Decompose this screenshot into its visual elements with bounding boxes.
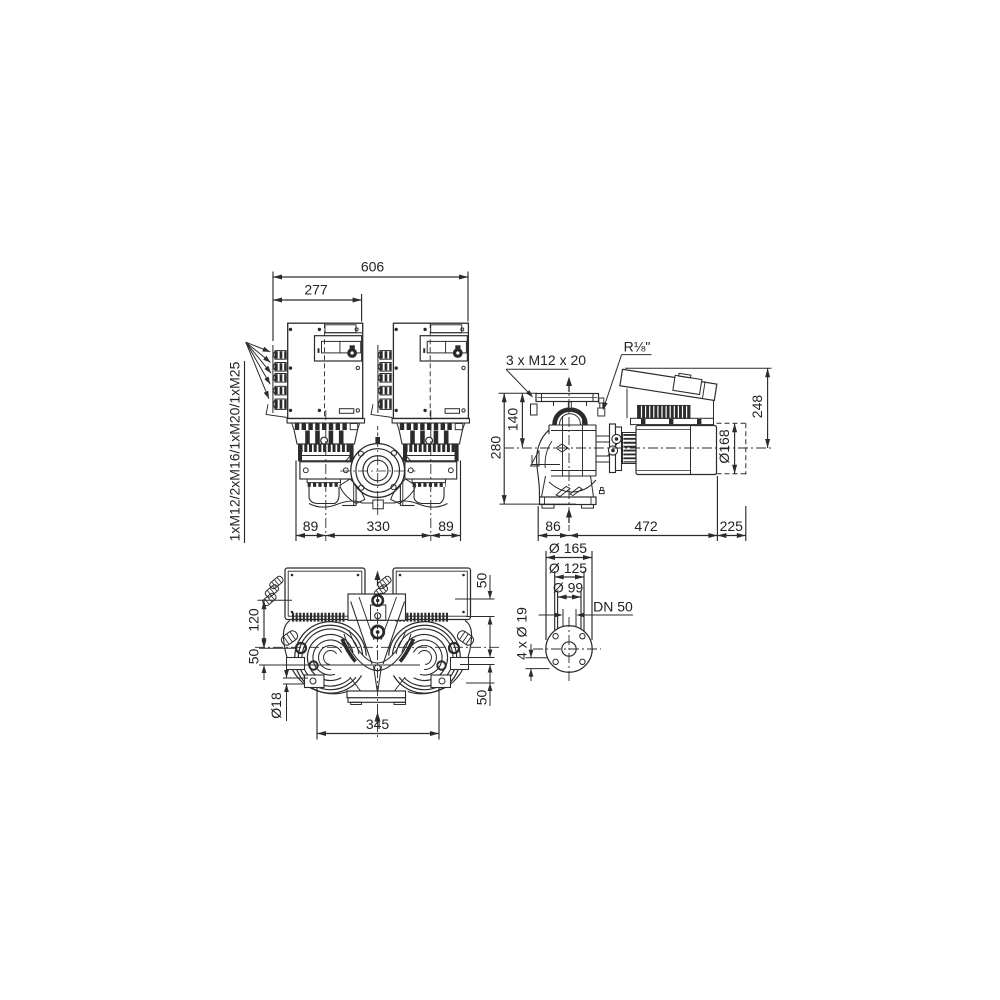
svg-text:225: 225 <box>720 518 744 534</box>
svg-text:248: 248 <box>749 395 765 419</box>
svg-text:89: 89 <box>438 518 454 534</box>
svg-text:345: 345 <box>366 716 390 732</box>
svg-text:280: 280 <box>488 436 504 460</box>
svg-text:277: 277 <box>304 282 328 298</box>
svg-text:330: 330 <box>367 518 391 534</box>
svg-text:DN 50: DN 50 <box>593 599 633 615</box>
svg-text:R⅛": R⅛" <box>624 339 651 355</box>
svg-text:140: 140 <box>505 408 521 432</box>
svg-text:89: 89 <box>303 518 319 534</box>
svg-text:86: 86 <box>545 518 561 534</box>
svg-text:Ø18: Ø18 <box>268 692 284 719</box>
svg-text:472: 472 <box>634 518 658 534</box>
svg-text:Ø 165: Ø 165 <box>549 540 587 556</box>
svg-text:50: 50 <box>474 690 490 706</box>
svg-text:Ø168: Ø168 <box>716 429 732 463</box>
svg-text:1xM12/2xM16/1xM20/1xM25: 1xM12/2xM16/1xM20/1xM25 <box>227 361 243 541</box>
svg-text:50: 50 <box>246 649 262 665</box>
svg-text:120: 120 <box>246 608 262 632</box>
svg-text:50: 50 <box>474 573 490 589</box>
svg-text:3 x M12 x 20: 3 x M12 x 20 <box>506 352 586 368</box>
svg-text:606: 606 <box>361 259 385 275</box>
svg-text:4 x Ø 19: 4 x Ø 19 <box>514 607 530 660</box>
